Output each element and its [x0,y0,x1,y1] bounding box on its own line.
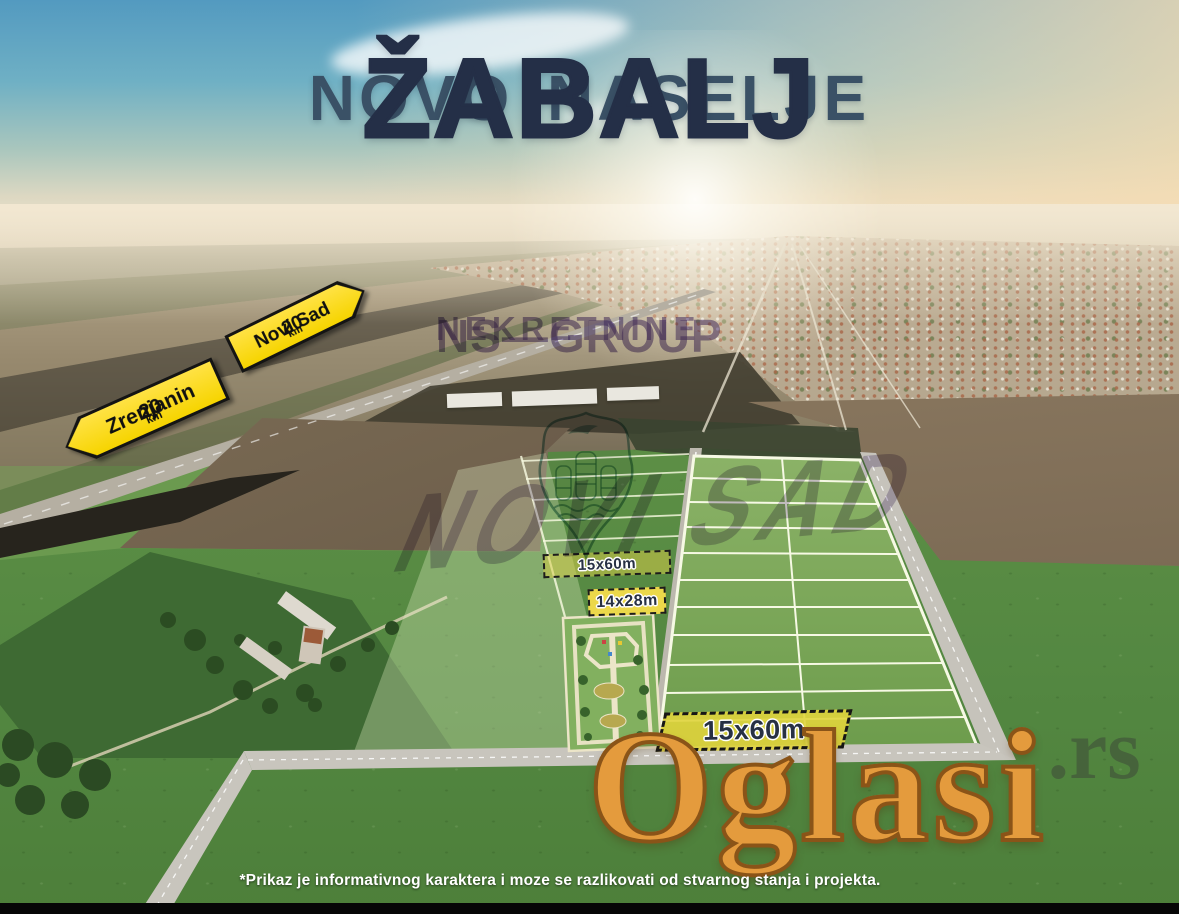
page-title: NOVO NASELJE ŽABALJ [0,36,1179,160]
disclaimer-text: *Prikaz je informativnog karaktera i moz… [0,872,1120,890]
plot-size-label-park: 14x28m [588,587,667,617]
agency-subtitle: NEKRETNINE [436,312,701,347]
plot-size-text: 14x28m [596,591,658,611]
title-emphasis: ŽABALJ [363,34,817,163]
bottom-bar [0,903,1179,914]
aerial-promo-image: 15x60m 14x28m 15x60m NS—GROUP NEKRETNINE… [0,0,1179,914]
portal-tld: .rs [1048,706,1141,792]
portal-name: Oglasi [588,697,1048,875]
portal-watermark: Oglasi.rs [588,706,1048,866]
